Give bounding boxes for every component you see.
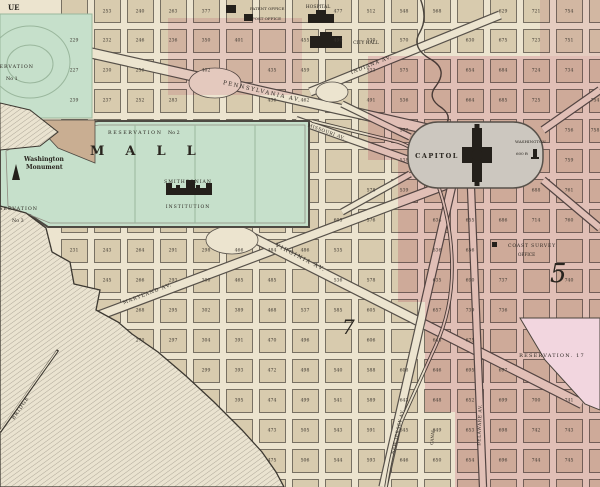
block-number: 491 — [367, 98, 376, 104]
block-number: 539 — [400, 188, 409, 194]
city-block — [326, 150, 352, 173]
block-number: 698 — [499, 428, 508, 434]
block-number: 758 — [591, 128, 600, 134]
block-number: 236 — [169, 38, 178, 44]
reservation-3-label: RESERVATION — [0, 206, 38, 212]
block-number: 291 — [169, 248, 178, 254]
block-number: 475 — [268, 458, 277, 464]
block-number: 605 — [367, 308, 376, 314]
washington-label: WASHINGTON — [515, 139, 546, 144]
city-block — [326, 480, 352, 487]
capitol-label: CAPITOL — [415, 152, 459, 160]
block-number: 237 — [103, 98, 112, 104]
map-canvas: 2532402633774775125485686297217542292322… — [0, 0, 600, 487]
block-number: 714 — [532, 218, 541, 224]
block-number: 391 — [235, 338, 244, 344]
city-hall-label: CITY HALL — [353, 40, 379, 46]
block-number: 751 — [565, 38, 574, 44]
block-number: 300 — [202, 278, 211, 284]
block-number: 512 — [367, 9, 376, 15]
block-number: 299 — [202, 368, 211, 374]
block-number: 496 — [301, 338, 310, 344]
block-number: 470 — [268, 338, 277, 344]
block-number: 230 — [103, 68, 112, 74]
block-number: 393 — [235, 368, 244, 374]
block-number: 759 — [565, 158, 574, 164]
block-number: 232 — [103, 38, 112, 44]
block-number: 266 — [136, 278, 145, 284]
reservation-1-label: RESERVATION — [0, 64, 34, 70]
patent-office-label: PATENT OFFICE — [250, 6, 284, 11]
block-number: 743 — [565, 428, 574, 434]
block-number: 229 — [70, 38, 79, 44]
block-number: 264 — [136, 248, 145, 254]
block-number: 473 — [268, 428, 277, 434]
block-number: 653 — [466, 428, 475, 434]
block-number: 761 — [565, 188, 574, 194]
hospital-label: HOSPITAL — [306, 4, 331, 10]
block-number: 664 — [466, 98, 475, 104]
block-number: 506 — [301, 458, 310, 464]
block-number: 656 — [466, 248, 475, 254]
block-number: 741 — [565, 398, 574, 404]
mall-label: MALL — [90, 144, 217, 159]
block-number: 231 — [70, 248, 79, 254]
block-number: 745 — [565, 458, 574, 464]
block-number: 548 — [400, 9, 409, 15]
block-number: 253 — [103, 9, 112, 15]
block-number: 756 — [565, 128, 574, 134]
smithsonian-label-2: INSTITUTION — [166, 204, 210, 210]
block-number: 436 — [268, 98, 277, 104]
corner-street-fragment: UE — [8, 3, 19, 12]
block-number: 490 — [334, 38, 343, 44]
post-office-label: POST OFFICE — [252, 16, 281, 21]
block-number: 537 — [301, 308, 310, 314]
block-number: 498 — [301, 368, 310, 374]
block-number: 283 — [169, 98, 178, 104]
block-number: 690 — [466, 278, 475, 284]
block-number: 605 — [334, 218, 343, 224]
washington-dc-map: 2532402633774775125485686297217542292322… — [0, 0, 600, 487]
reservation-2-label: RESERVATION — [108, 130, 163, 136]
block-number: 297 — [169, 338, 178, 344]
block-number: 585 — [334, 308, 343, 314]
block-number: 468 — [268, 308, 277, 314]
block-number: 593 — [367, 458, 376, 464]
reservation-2-number: No 2 — [168, 130, 180, 136]
block-number: 536 — [334, 278, 343, 284]
block-number: 505 — [301, 428, 310, 434]
block-number: 654 — [466, 458, 475, 464]
block-number: 402 — [202, 68, 211, 74]
block-number: 591 — [367, 428, 376, 434]
block-number: 544 — [334, 458, 343, 464]
block-number: 589 — [367, 398, 376, 404]
block-number: 645 — [433, 338, 442, 344]
block-number: 578 — [367, 188, 376, 194]
block-number: 486 — [301, 248, 310, 254]
block-number: 435 — [268, 68, 277, 74]
block-number: 568 — [433, 9, 442, 15]
block-number: 646 — [433, 368, 442, 374]
block-number: 575 — [400, 68, 409, 74]
block-number: 737 — [499, 278, 508, 284]
block-number: 608 — [400, 368, 409, 374]
block-number: 268 — [136, 308, 145, 314]
block-number: 736 — [499, 308, 508, 314]
avenue-plaza — [316, 82, 348, 102]
block-number: 675 — [499, 38, 508, 44]
block-number: 256 — [136, 68, 145, 74]
block-number: 646 — [400, 458, 409, 464]
block-number: 652 — [466, 398, 475, 404]
block-number: 675 — [466, 338, 475, 344]
block-number: 630 — [466, 38, 475, 44]
block-number: 270 — [136, 338, 145, 344]
block-number: 588 — [367, 368, 376, 374]
reservation-3-number: No 3 — [12, 218, 24, 224]
block-number: 298 — [202, 248, 211, 254]
block-number: 754 — [591, 98, 600, 104]
block-number: 723 — [532, 38, 541, 44]
block-number: 742 — [532, 428, 541, 434]
block-number: 459 — [301, 68, 310, 74]
ward-7-numeral: 7 — [342, 315, 355, 339]
block-number: 700 — [532, 398, 541, 404]
block-number: 245 — [103, 278, 112, 284]
block-number: 239 — [70, 98, 79, 104]
block-number: 541 — [334, 398, 343, 404]
ward-5-numeral: 5 — [550, 259, 567, 289]
block-number: 695 — [466, 368, 475, 374]
reservation-1-number: No 1 — [6, 76, 18, 82]
block-number: 240 — [136, 9, 145, 15]
block-number: 744 — [532, 458, 541, 464]
city-block — [392, 480, 418, 487]
block-number: 543 — [334, 428, 343, 434]
city-block — [359, 240, 385, 263]
block-number: 243 — [103, 248, 112, 254]
block-number: 636 — [433, 248, 442, 254]
block-number: 650 — [433, 458, 442, 464]
city-block — [425, 480, 451, 487]
block-number: 578 — [367, 278, 376, 284]
block-number: 263 — [169, 9, 178, 15]
washington-monument-label-1: Washington — [23, 156, 64, 163]
block-number: 606 — [367, 338, 376, 344]
block-number: 227 — [70, 68, 79, 74]
capitol-height-label: 600 ft — [516, 151, 528, 156]
block-number: 725 — [532, 98, 541, 104]
block-number: 570 — [400, 38, 409, 44]
avenue-plaza — [206, 226, 258, 254]
block-number: 648 — [433, 398, 442, 404]
block-number: 252 — [136, 98, 145, 104]
smithsonian-label-1: SMITHSONIAN — [164, 179, 212, 185]
block-number: 643 — [400, 398, 409, 404]
block-number: 760 — [565, 218, 574, 224]
block-number: 724 — [532, 68, 541, 74]
city-block — [293, 480, 319, 487]
block-number: 295 — [169, 308, 178, 314]
block-number: 538 — [400, 158, 409, 164]
block-number: 540 — [334, 368, 343, 374]
coast-survey-label: COAST SURVEY — [508, 243, 556, 249]
block-number: 377 — [202, 9, 211, 15]
block-number: 350 — [202, 38, 211, 44]
block-number: 699 — [499, 398, 508, 404]
block-number: 577 — [400, 128, 409, 134]
block-number: 685 — [499, 98, 508, 104]
block-number: 302 — [202, 308, 211, 314]
block-number: 576 — [367, 218, 376, 224]
block-number: 485 — [268, 278, 277, 284]
block-number: 655 — [466, 218, 475, 224]
block-number: 472 — [268, 368, 277, 374]
reservation-17-label: RESERVATION. 17 — [519, 353, 585, 359]
block-number: 304 — [202, 338, 211, 344]
block-number: 657 — [433, 308, 442, 314]
block-number: 246 — [136, 38, 145, 44]
block-number: 721 — [532, 9, 541, 15]
block-number: 474 — [268, 398, 277, 404]
coast-survey-office-label: OFFICE — [518, 252, 535, 257]
block-number: 536 — [400, 98, 409, 104]
block-number: 455 — [301, 38, 310, 44]
block-number: 395 — [235, 398, 244, 404]
block-number: 654 — [466, 68, 475, 74]
block-number: 634 — [433, 218, 442, 224]
block-number: 389 — [235, 308, 244, 314]
block-number: 466 — [235, 248, 244, 254]
block-number: 739 — [466, 308, 475, 314]
washington-monument-label-2: Monument — [26, 164, 63, 171]
block-number: 734 — [565, 68, 574, 74]
city-block — [326, 180, 352, 203]
block-number: 465 — [235, 278, 244, 284]
block-number: 684 — [499, 68, 508, 74]
block-number: 629 — [499, 9, 508, 15]
block-number: 477 — [334, 9, 343, 15]
block-number: 499 — [301, 398, 310, 404]
coast-survey-icon — [492, 242, 497, 247]
block-number: 686 — [499, 218, 508, 224]
block-number: 401 — [235, 38, 244, 44]
block-number: 535 — [334, 248, 343, 254]
block-number: 635 — [433, 278, 442, 284]
block-number: 754 — [565, 9, 574, 15]
block-number: 688 — [532, 188, 541, 194]
block-number: 697 — [499, 368, 508, 374]
block-number: 696 — [499, 458, 508, 464]
